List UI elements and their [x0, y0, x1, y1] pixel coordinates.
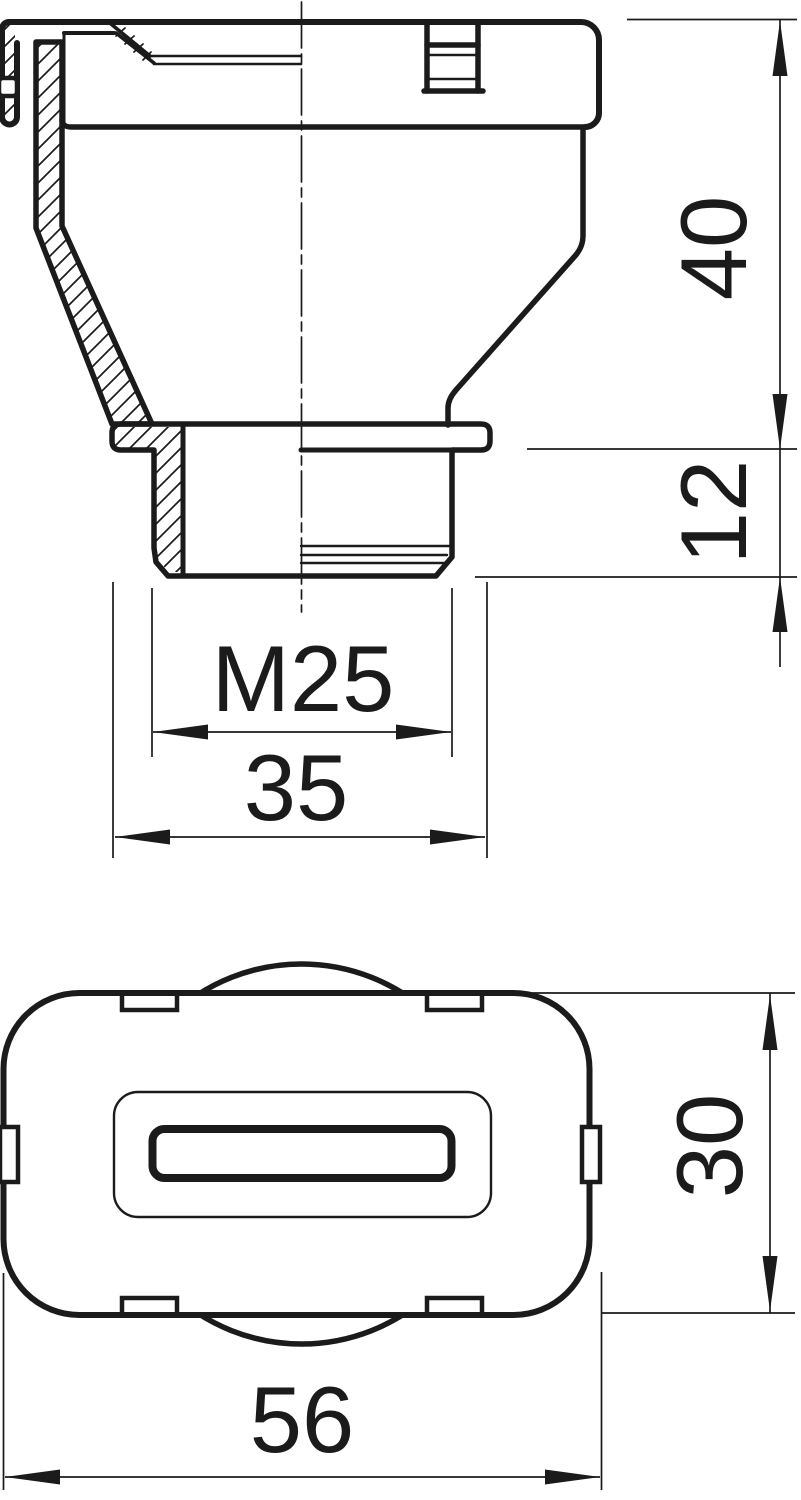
dim-label-upper-height: 40 — [661, 196, 766, 301]
dim-label-body-depth: 30 — [657, 1094, 762, 1199]
funnel-wall-hatch — [36, 42, 152, 424]
cap-inner-chamfer — [111, 24, 154, 63]
funnel-right-outline — [448, 127, 583, 425]
dim-label-thread-size: M25 — [212, 626, 395, 731]
seal-ridge — [0, 78, 17, 96]
left-side-tab — [0, 1127, 18, 1182]
bottom-view — [0, 964, 600, 1344]
right-side-tab — [582, 1127, 600, 1182]
latch-window — [424, 23, 483, 91]
side-section-view — [0, 2, 599, 612]
dim-label-thread-length: 12 — [661, 460, 766, 565]
dim-label-flange-diameter: 35 — [244, 735, 349, 840]
slot-outline — [153, 1129, 452, 1178]
drawing-sheet: 40 12 M25 35 30 — [0, 0, 801, 1500]
dim-label-body-width: 56 — [250, 1367, 355, 1472]
flange-wall-hatch — [115, 427, 183, 572]
technical-drawing: 40 12 M25 35 30 — [0, 0, 801, 1500]
cap-outer-outline — [2, 22, 599, 127]
cap-left-wall-hatch — [4, 24, 15, 118]
cap-bottom-edge — [62, 119, 583, 127]
dimension-m25: M25 — [152, 588, 452, 757]
dimension-40-12: 40 12 — [475, 20, 797, 668]
cap-inner-lip-lines — [150, 56, 301, 64]
